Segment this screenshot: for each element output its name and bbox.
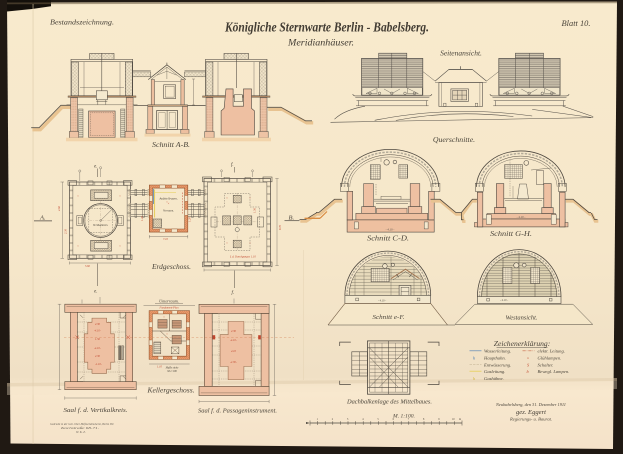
svg-text:e.: e. xyxy=(94,290,97,295)
svg-text:Querschnitte.: Querschnitte. xyxy=(433,135,475,144)
svg-text:Fundament-Plan: Fundament-Plan xyxy=(159,307,180,310)
svg-text:gez. Eggert: gez. Eggert xyxy=(516,409,546,416)
svg-text:1.10: 1.10 xyxy=(157,366,162,369)
svg-text:-2.30-: -2.30- xyxy=(230,361,237,364)
svg-text:2.30: 2.30 xyxy=(95,355,100,358)
svg-text:Bewegl. Lampen.: Bewegl. Lampen. xyxy=(538,369,570,374)
svg-text:Erdgeschoss.: Erdgeschoss. xyxy=(151,262,191,271)
svg-text:Schnitt C-D.: Schnitt C-D. xyxy=(367,236,409,243)
svg-text:m: m xyxy=(459,418,461,421)
svg-text:Schnitt e-F.: Schnitt e-F. xyxy=(373,314,405,321)
svg-text:7.10: 7.10 xyxy=(163,238,168,241)
svg-text:8.70: 8.70 xyxy=(279,225,282,230)
svg-text:Schnitt G-H.: Schnitt G-H. xyxy=(490,231,532,238)
svg-text:×: × xyxy=(226,197,228,200)
svg-text:Kellergeschoss.: Kellergeschoss. xyxy=(147,386,195,395)
svg-text:- 4.10 -: - 4.10 - xyxy=(386,228,395,232)
svg-text:e.: e. xyxy=(94,165,97,170)
svg-text:Aufstellraum.: Aufstellraum. xyxy=(158,197,178,201)
svg-text:2.30: 2.30 xyxy=(65,229,68,234)
svg-text:Wasserleitung.: Wasserleitung. xyxy=(484,349,511,354)
svg-text:Saal f. d. Vertikalkreis.: Saal f. d. Vertikalkreis. xyxy=(64,407,128,414)
svg-text:×: × xyxy=(166,333,168,336)
svg-text:×: × xyxy=(226,242,228,245)
svg-text:M 1:100: M 1:100 xyxy=(166,370,177,373)
svg-text:Schalter.: Schalter. xyxy=(538,362,554,367)
svg-text:×: × xyxy=(119,195,121,198)
svg-text:-4.10-: -4.10- xyxy=(230,339,237,342)
svg-text:1.56: 1.56 xyxy=(254,208,257,213)
svg-text:1.56: 1.56 xyxy=(95,338,100,341)
svg-text:2.30: 2.30 xyxy=(95,323,100,326)
svg-text:Haupthahn.: Haupthahn. xyxy=(483,356,506,361)
svg-text:×: × xyxy=(527,356,530,361)
svg-text:Blatt 10.: Blatt 10. xyxy=(562,19,591,28)
svg-text:-4.10-: -4.10- xyxy=(94,330,101,333)
svg-text:Gasleitung.: Gasleitung. xyxy=(484,369,505,374)
svg-text:×: × xyxy=(119,245,121,248)
svg-text:Vorraum.: Vorraum. xyxy=(163,209,174,213)
svg-text:5.60: 5.60 xyxy=(85,265,90,268)
svg-text:4.10: 4.10 xyxy=(231,350,236,353)
svg-text:-1.10-: -1.10- xyxy=(95,363,102,366)
svg-text:- 4.10 -: - 4.10 - xyxy=(378,299,386,302)
svg-text:Dachbalkenlage des Mittelbaues: Dachbalkenlage des Mittelbaues. xyxy=(346,399,432,406)
svg-text:Unterraum.: Unterraum. xyxy=(159,299,179,304)
svg-text:×: × xyxy=(77,195,79,198)
svg-text:Meridianhäuser.: Meridianhäuser. xyxy=(287,38,354,48)
svg-text:M. 1:100.: M. 1:100. xyxy=(392,414,415,420)
svg-text:×: × xyxy=(77,245,79,248)
svg-text:1.20: 1.20 xyxy=(141,216,144,221)
svg-text:Vertikalkreis.: Vertikalkreis. xyxy=(93,223,109,227)
svg-text:1.20: 1.20 xyxy=(189,217,192,222)
svg-text:f. d. Durchgangsr. 1.10: f. d. Durchgangsr. 1.10 xyxy=(230,256,256,259)
svg-text:2.30: 2.30 xyxy=(231,330,236,333)
svg-text:Seitenansicht.: Seitenansicht. xyxy=(440,49,482,58)
svg-text:4.60: 4.60 xyxy=(58,206,61,211)
svg-text:A.: A. xyxy=(39,215,46,222)
svg-text:Zeichenerklärung:: Zeichenerklärung: xyxy=(494,339,551,348)
svg-text:×: × xyxy=(163,316,165,319)
svg-text:×: × xyxy=(168,202,170,206)
svg-text:×: × xyxy=(249,242,251,245)
svg-text:f.: f. xyxy=(232,291,235,296)
svg-text:W. K. Z.: W. K. Z. xyxy=(76,430,86,434)
svg-text:×: × xyxy=(249,197,251,200)
svg-text:- 4.10 -: - 4.10 - xyxy=(500,299,508,302)
svg-text:elektr. Leitung.: elektr. Leitung. xyxy=(538,349,565,354)
svg-text:Königliche Sternwarte Berlin -: Königliche Sternwarte Berlin - Babelsber… xyxy=(224,20,429,35)
svg-text:Westansicht.: Westansicht. xyxy=(506,315,538,322)
svg-text:Schnitt A-B.: Schnitt A-B. xyxy=(152,140,190,149)
svg-text:Entwässerung.: Entwässerung. xyxy=(483,362,511,367)
svg-text:Saal f. d. Passageninstrument.: Saal f. d. Passageninstrument. xyxy=(198,408,277,415)
svg-text:Glühlampen.: Glühlampen. xyxy=(538,356,562,361)
svg-text:f.: f. xyxy=(231,163,234,168)
svg-text:Regierungs- u. Baurat.: Regierungs- u. Baurat. xyxy=(509,417,552,422)
svg-text:×: × xyxy=(174,349,176,352)
svg-text:-4.10-: -4.10- xyxy=(94,347,101,350)
svg-text:Bestandszeichnung.: Bestandszeichnung. xyxy=(50,19,114,27)
svg-text:- 4.10 -: - 4.10 - xyxy=(517,215,526,219)
svg-text:Gashähne.: Gashähne. xyxy=(484,376,504,381)
